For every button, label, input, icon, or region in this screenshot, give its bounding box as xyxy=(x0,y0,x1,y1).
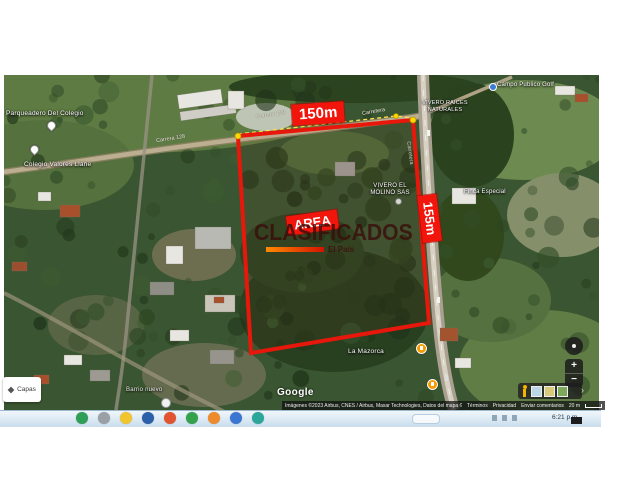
layers-button[interactable]: Capas xyxy=(3,377,41,402)
feedback-link[interactable]: Enviar comentarios xyxy=(521,403,564,409)
layer-thumbnail[interactable] xyxy=(544,386,555,397)
map-label-colegio: Colegio Valores Llane xyxy=(24,161,91,168)
imagery-credits: Imágenes ©2023 Airbus, CNES / Airbus, Ma… xyxy=(285,403,462,409)
golf-marker-icon[interactable] xyxy=(489,83,497,91)
system-tray[interactable] xyxy=(492,415,517,421)
app-icon[interactable] xyxy=(76,412,88,424)
app-icon[interactable] xyxy=(230,412,242,424)
app-icon[interactable] xyxy=(120,412,132,424)
map-attribution-bar: Imágenes ©2023 Airbus, CNES / Airbus, Ma… xyxy=(282,401,605,410)
map-label-barrio: Barrio nuevo xyxy=(126,387,162,394)
measurement-top-150m: 150m xyxy=(291,101,345,126)
zoom-in-button[interactable]: + xyxy=(565,359,583,374)
watermark-subtitle: El País xyxy=(328,245,354,254)
watermark-brand: El País xyxy=(266,245,354,254)
streetview-layerbar xyxy=(518,383,582,399)
app-icon[interactable] xyxy=(252,412,264,424)
scale-bar xyxy=(585,404,602,408)
restaurant-marker-icon[interactable] xyxy=(416,343,427,354)
layer-thumbnail[interactable] xyxy=(531,386,542,397)
poi-dot-icon[interactable] xyxy=(161,398,171,408)
map-label-vivero-raices: VIVERO RAICES NATURALES xyxy=(418,100,472,114)
watermark-clasificados: CLASIFICADOS xyxy=(254,219,413,246)
map-label-mazorca: La Mazorca xyxy=(348,348,384,355)
map-label-finca: Finca Especial xyxy=(464,189,506,196)
map-label-golf: Campo Publico Golf xyxy=(497,82,554,89)
map-label-parqueadero: Parqueadero Del Colegio xyxy=(6,110,84,117)
taskbar-app-icons xyxy=(76,412,264,424)
restaurant-marker-icon[interactable] xyxy=(427,379,438,390)
layers-icon xyxy=(8,386,15,393)
map-label-vivero-molino: VIVERO EL MOLINO SAS xyxy=(366,183,414,197)
terms-link[interactable]: Términos xyxy=(467,403,488,409)
pegman-icon[interactable] xyxy=(520,385,529,398)
chevron-right-icon[interactable]: › xyxy=(581,385,584,395)
taskbar-widget[interactable] xyxy=(412,414,440,424)
app-icon[interactable] xyxy=(164,412,176,424)
app-icon[interactable] xyxy=(208,412,220,424)
screenshot-root: Parqueadero Del Colegio Colegio Valores … xyxy=(0,0,640,480)
layers-label: Capas xyxy=(17,386,36,393)
google-logo: Google xyxy=(277,387,314,398)
poi-dot-icon[interactable] xyxy=(395,198,402,205)
privacy-link[interactable]: Privacidad xyxy=(493,403,516,409)
app-icon[interactable] xyxy=(142,412,154,424)
app-icon[interactable] xyxy=(186,412,198,424)
compass-button[interactable] xyxy=(565,337,583,355)
layer-thumbnail[interactable] xyxy=(557,386,568,397)
scale-label: 20 m xyxy=(569,403,580,409)
taskbar-window-thumb[interactable] xyxy=(571,417,582,424)
app-icon[interactable] xyxy=(98,412,110,424)
watermark-bar xyxy=(266,247,324,252)
